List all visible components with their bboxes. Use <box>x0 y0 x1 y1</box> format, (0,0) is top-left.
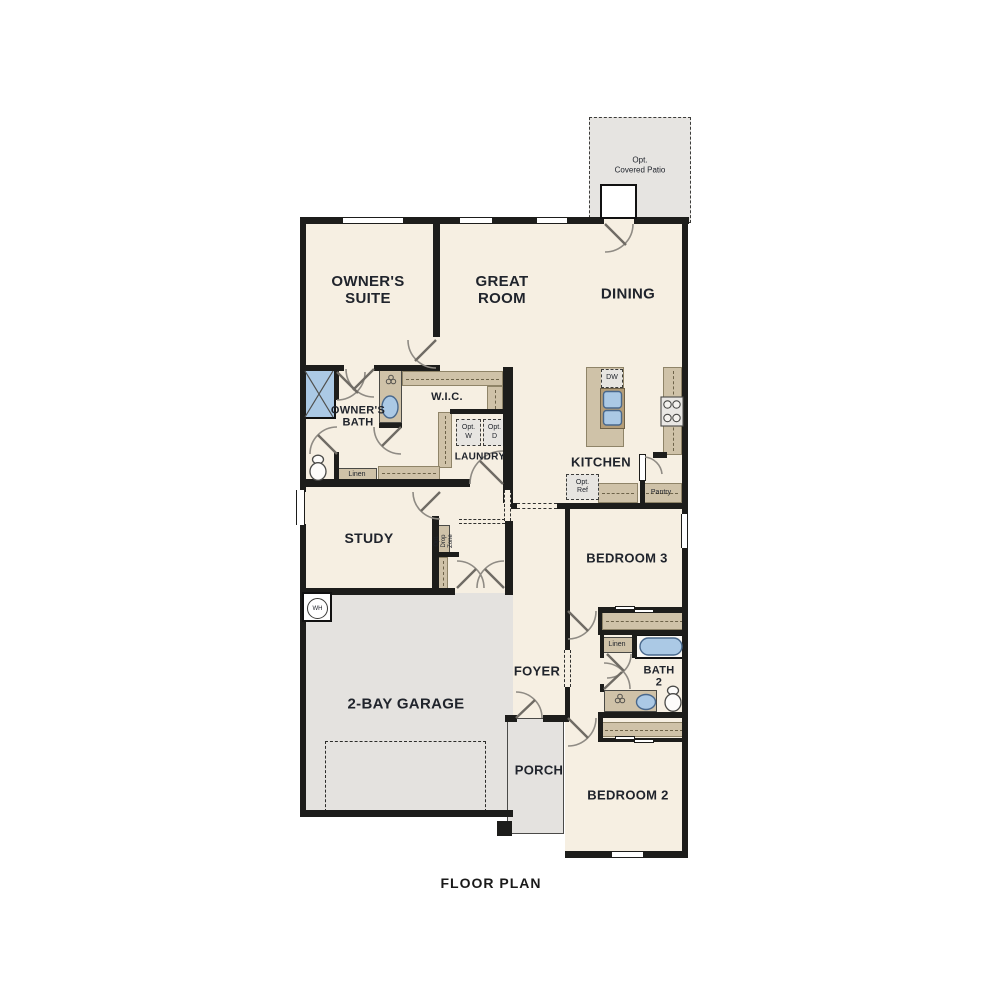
opt-washer-box: Opt.W <box>456 419 481 446</box>
wall <box>557 503 687 509</box>
wall <box>374 365 440 371</box>
bedroom3-closet-shelf <box>602 612 687 630</box>
wall <box>433 217 440 337</box>
pantry-label: Pantry <box>651 489 671 497</box>
room-label-kitchen: KITCHEN <box>571 456 631 471</box>
room-label-great-room: GREATROOM <box>476 274 529 308</box>
closet-slider-panel <box>634 739 654 743</box>
closet-slider-panel <box>615 736 635 740</box>
wall <box>598 718 603 740</box>
drop-zone-label: Opt.DropZone <box>434 534 456 548</box>
window <box>296 490 305 525</box>
wall <box>543 715 569 722</box>
cased-opening <box>517 503 557 509</box>
patio-label: Opt.Covered Patio <box>615 156 666 177</box>
porch-post <box>497 821 512 836</box>
room-label-garage: 2-BAY GARAGE <box>348 697 465 714</box>
wall <box>334 368 339 400</box>
room-label-owners-bath: OWNER'SBATH <box>331 405 385 430</box>
cased-opening <box>459 519 505 524</box>
room-label-porch: PORCH <box>515 764 563 779</box>
wall <box>565 851 612 858</box>
window <box>537 217 567 224</box>
room-label-bath2: BATH2 <box>644 665 675 690</box>
wall <box>598 630 687 635</box>
wall <box>300 594 306 816</box>
wall <box>565 607 570 650</box>
room-label-dining: DINING <box>601 287 655 304</box>
bath2-vanity <box>604 690 657 712</box>
foyer-floor-area <box>505 590 567 722</box>
room-label-study: STUDY <box>345 531 394 547</box>
wall <box>300 217 306 492</box>
floor-plan-title: FLOOR PLAN <box>441 876 542 892</box>
wall <box>503 367 513 503</box>
opt-refrigerator-box: Opt.Ref <box>566 474 599 500</box>
room-label-bedroom3: BEDROOM 3 <box>586 552 667 567</box>
wall <box>632 635 637 658</box>
bathtub <box>635 634 686 659</box>
pantry-door-leaf <box>639 454 646 481</box>
kitchen-counter <box>663 367 682 455</box>
water-heater-icon: WH <box>307 598 328 619</box>
wall <box>682 217 688 514</box>
linen-label-bath2: Linen <box>608 641 625 649</box>
window <box>612 851 643 858</box>
cased-opening <box>564 650 571 687</box>
kitchen-counter <box>598 483 638 503</box>
wic-shelf <box>438 412 452 468</box>
wall <box>300 524 306 594</box>
kitchen-sink-counter <box>600 388 625 429</box>
room-label-wic: W.I.C. <box>431 391 463 403</box>
wall <box>598 712 687 718</box>
room-label-foyer: FOYER <box>514 665 560 680</box>
bedroom2-closet-shelf <box>601 722 687 737</box>
wall <box>643 851 688 858</box>
wall <box>505 521 513 590</box>
window <box>343 217 373 224</box>
window <box>681 514 688 548</box>
floor-plan-canvas: DW Opt.W Opt.D Opt.Ref WH <box>0 0 1000 1000</box>
room-label-owners-suite: OWNER'SSUITE <box>331 274 404 308</box>
dishwasher-box: DW <box>601 369 623 388</box>
wall <box>600 684 604 692</box>
window <box>373 217 403 224</box>
drop-zone-cabinet <box>438 557 448 590</box>
cased-opening <box>504 490 511 521</box>
wic-shelf <box>402 371 503 386</box>
closet-slider-panel <box>634 609 654 613</box>
wall <box>682 548 688 858</box>
wall <box>505 715 517 722</box>
wall <box>653 452 667 458</box>
wall <box>565 687 570 714</box>
wall <box>600 635 604 658</box>
room-label-bedroom2: BEDROOM 2 <box>587 789 668 804</box>
closet-slider-panel <box>615 606 635 610</box>
wic-shelf <box>378 466 440 480</box>
wall <box>334 452 339 482</box>
wall <box>505 588 513 595</box>
linen-label-owners: Linen <box>348 471 365 479</box>
wall <box>450 409 507 414</box>
wall <box>437 552 459 557</box>
garage-door-outline <box>325 741 486 812</box>
wall <box>300 810 513 817</box>
patio-entry-vestibule <box>600 184 637 219</box>
wall <box>565 509 570 607</box>
window <box>460 217 492 224</box>
room-label-laundry: LAUNDRY <box>455 451 506 462</box>
wall <box>300 479 470 487</box>
